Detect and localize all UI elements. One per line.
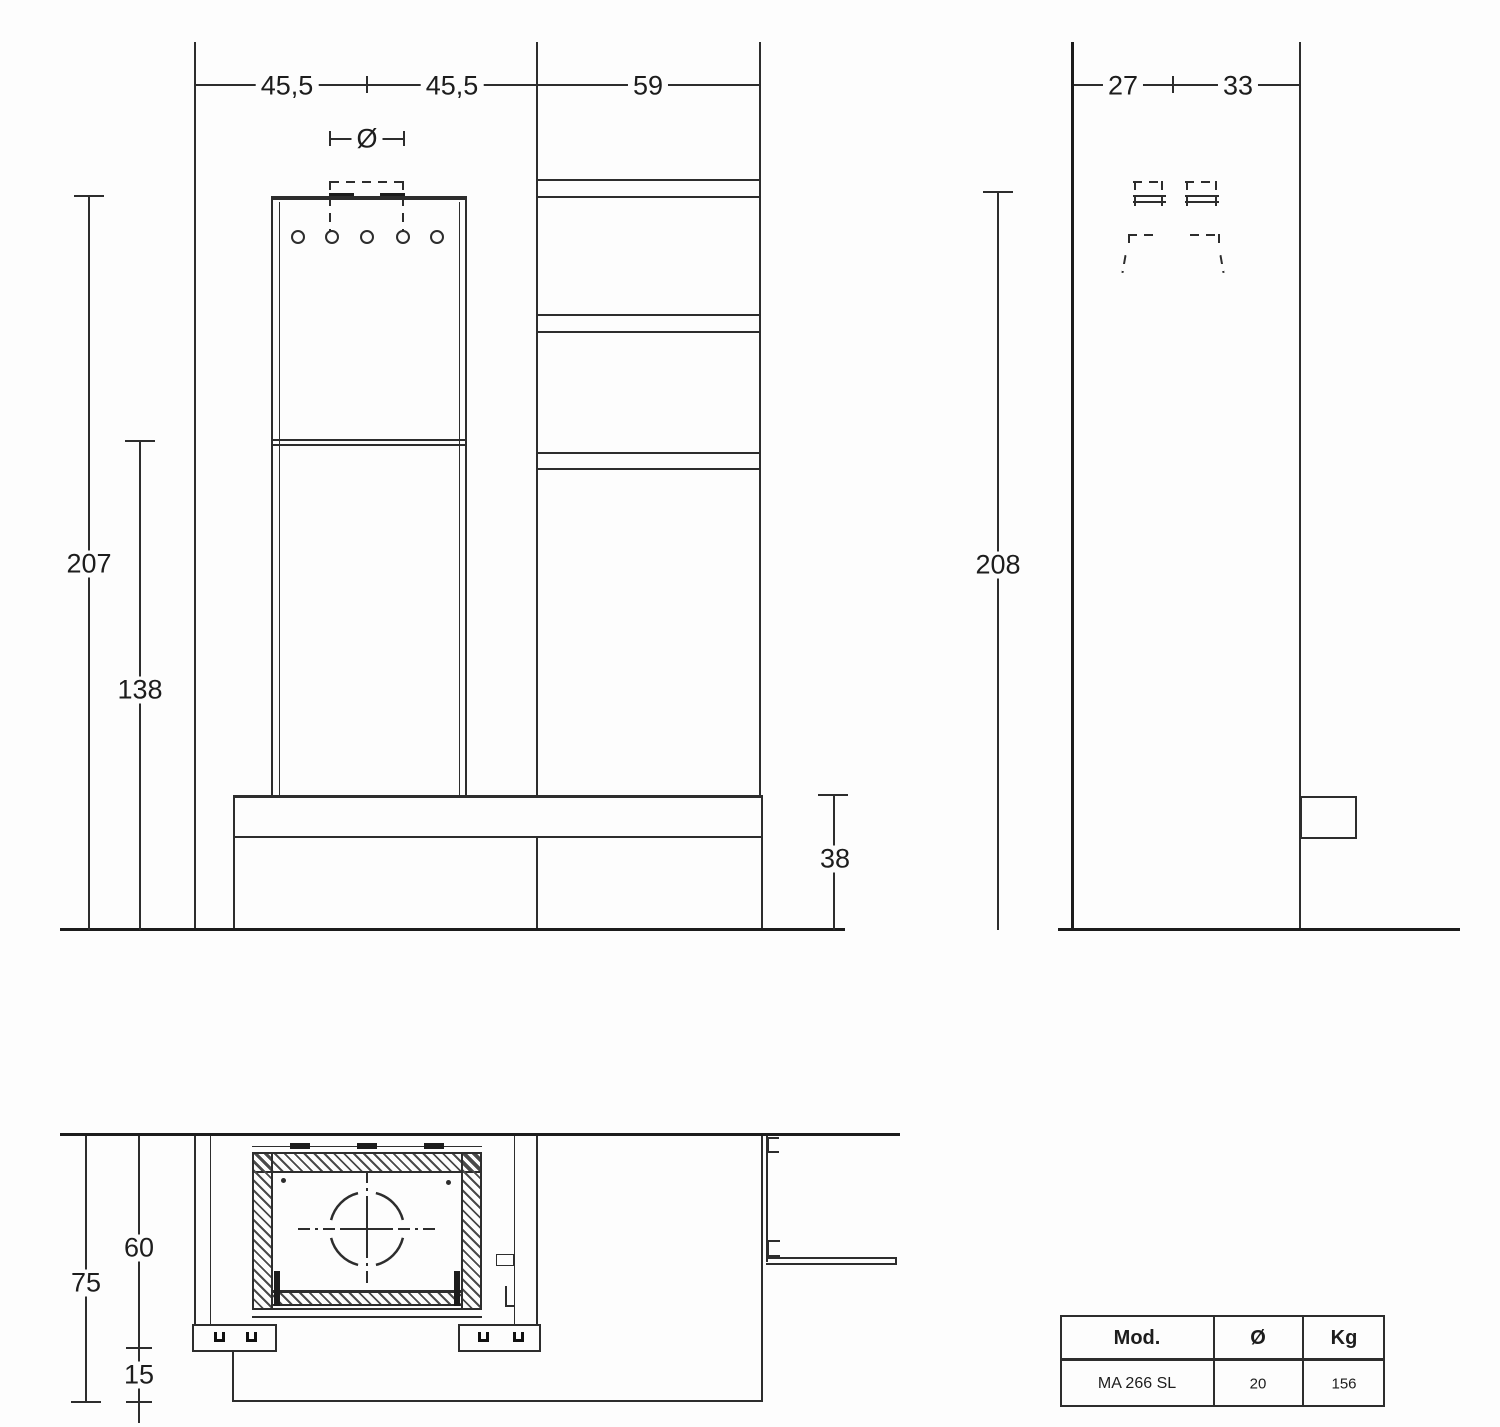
dim-138-cap (125, 440, 155, 442)
shelf-band-2a (538, 314, 759, 316)
dim-207-cap (74, 195, 104, 197)
plan-ledge-block-right (458, 1324, 541, 1352)
shelf-band-2b (538, 331, 759, 333)
plan-ledge-notch-l2 (246, 1332, 257, 1342)
front-right-wall-line (759, 42, 761, 795)
flue-dashed-top (330, 181, 404, 183)
dim-75-cap (71, 1401, 101, 1403)
side-flue-bar-2b (1185, 201, 1219, 203)
dim-label-ledge: 15 (119, 1362, 159, 1389)
section-bracket-bottom (767, 1240, 780, 1257)
section-wall-outer (761, 1136, 763, 1402)
plan-top-tab-1 (290, 1143, 310, 1149)
section-shelf-line-1 (766, 1257, 897, 1259)
dim-label-side-height: 208 (970, 552, 1025, 579)
plan-corner-bar-right (454, 1271, 460, 1306)
plan-hinge-dot-right (446, 1180, 451, 1185)
side-flue-dashed-top-right (1185, 181, 1216, 183)
firebox-divider-line-2 (273, 444, 465, 446)
plan-wall-top-line (60, 1133, 900, 1136)
side-collar-dash-left (1128, 234, 1158, 236)
firebox-inner-wall-left (279, 202, 280, 795)
side-flue-dashed-top-left (1133, 181, 1163, 183)
front-width-dim-mid-tick (366, 76, 368, 93)
dim-15-tick (126, 1401, 152, 1403)
plan-hinge-dot-left (281, 1178, 286, 1183)
side-depth-dim-mid-tick (1172, 76, 1174, 93)
base-right-edge (761, 838, 763, 930)
section-bracket-top (767, 1137, 779, 1153)
dim-label-bench-height: 38 (815, 846, 855, 873)
spec-value-model: MA 266 SL (1093, 1376, 1181, 1392)
side-left-wall-line (1071, 42, 1074, 930)
side-collar-slant-left (1121, 255, 1126, 273)
plan-frame-top-band (252, 1152, 482, 1173)
spec-value-weight: 156 (1326, 1377, 1361, 1392)
plan-top-tab-2 (357, 1143, 377, 1149)
dim-38-cap (818, 794, 848, 796)
dim-label-depth-firebox: 60 (119, 1235, 159, 1262)
plan-ledge-notch-l1 (214, 1332, 225, 1342)
plan-wall-step-v (505, 1286, 507, 1306)
plan-left-wall-outer (194, 1136, 196, 1352)
dim-label-column-width: 59 (628, 73, 668, 100)
side-flue-bar-2a (1185, 195, 1219, 197)
side-flue-bar-1a (1133, 195, 1166, 197)
spec-value-diameter: 20 (1245, 1377, 1272, 1392)
dim-label-total-height: 207 (61, 551, 116, 578)
vent-hole-1 (291, 230, 305, 244)
firebox-inner-wall-right (459, 202, 460, 795)
vent-hole-5 (430, 230, 444, 244)
side-collar-corner-left (1128, 234, 1130, 249)
shelf-band-3a (538, 452, 759, 454)
base-left-edge (233, 838, 235, 930)
firebox-divider-line-1 (273, 439, 465, 441)
firebox-front-outline (271, 196, 467, 795)
section-shelf-end-cap (895, 1257, 897, 1265)
plan-ledge-notch-r1 (478, 1332, 489, 1342)
plan-corner-bar-left (274, 1271, 280, 1306)
plan-ledge-block-left (192, 1324, 277, 1352)
plan-frame-left-band (252, 1152, 273, 1310)
spec-header-weight: Kg (1326, 1328, 1363, 1348)
side-collar-dash-right (1190, 234, 1220, 236)
side-flue-bar-1b (1133, 201, 1166, 203)
side-collar-corner-right (1218, 234, 1220, 249)
plan-front-frame-line-2 (252, 1316, 482, 1318)
spec-table-row-sep (1060, 1358, 1385, 1361)
front-mid-wall-line (536, 42, 538, 795)
plan-top-tab-3 (424, 1143, 444, 1149)
vent-hole-4 (396, 230, 410, 244)
side-ground-line (1058, 928, 1460, 931)
plan-hearth-left-edge (232, 1352, 234, 1402)
plan-cross-v (366, 1206, 368, 1252)
plan-left-wall-inner (210, 1136, 211, 1352)
bench-slab-outline (233, 795, 763, 838)
dim-label-opening-height: 138 (112, 677, 167, 704)
shelf-band-1b (538, 196, 759, 198)
shelf-band-1a (538, 179, 759, 181)
plan-front-frame-line-1 (252, 1308, 482, 1310)
plan-right-wall-outer (536, 1136, 538, 1352)
dim-label-width-left: 45,5 (256, 73, 319, 100)
flue-dim-tick-right (403, 131, 405, 146)
flue-dim-tick-left (329, 131, 331, 146)
dim-label-flue-diameter: Ø (351, 126, 382, 153)
spec-header-model: Mod. (1109, 1328, 1166, 1348)
dim-208-cap (983, 191, 1013, 193)
shelf-band-3b (538, 468, 759, 470)
front-left-wall-line (194, 42, 196, 930)
plan-frame-bottom-strip (271, 1291, 463, 1306)
spec-table-col-sep-2 (1302, 1315, 1304, 1407)
section-shelf-line-2 (766, 1263, 897, 1265)
vent-hole-2 (325, 230, 339, 244)
plan-wall-step-h (505, 1305, 514, 1307)
front-ground-line (60, 928, 845, 931)
side-outlet-box (1300, 796, 1357, 839)
plan-frame-right-band (461, 1152, 482, 1310)
side-collar-slant-right (1219, 255, 1224, 273)
vent-hole-3 (360, 230, 374, 244)
plan-wall-tab (496, 1254, 514, 1266)
technical-drawing-sheet: 45,5 45,5 59 Ø (0, 0, 1500, 1427)
dim-label-depth-total: 75 (66, 1270, 106, 1297)
plan-right-wall-inner (514, 1136, 515, 1352)
plan-hearth-bottom-edge (232, 1400, 763, 1402)
spec-table-col-sep-1 (1213, 1315, 1215, 1407)
dim-label-width-right: 45,5 (421, 73, 484, 100)
plan-ledge-notch-r2 (513, 1332, 524, 1342)
base-mid-divider (536, 838, 538, 930)
dim-label-depth-front: 27 (1103, 73, 1143, 100)
dim-label-depth-back: 33 (1218, 73, 1258, 100)
spec-header-diameter: Ø (1245, 1328, 1271, 1348)
